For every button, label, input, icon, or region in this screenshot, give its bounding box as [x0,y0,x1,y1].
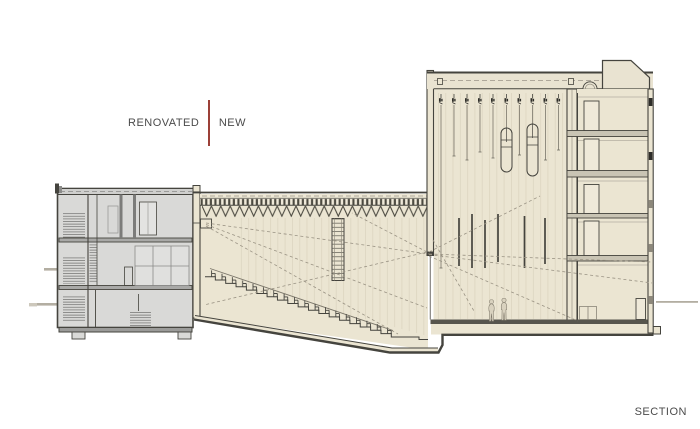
foundation-pad [72,332,85,339]
section-title: SECTION [635,406,687,418]
section-drawing-canvas: RENOVATED NEW SECTION [0,0,700,429]
hanging-tech-box [332,219,344,281]
proscenium-wall [427,71,434,256]
floor-slab [59,286,192,290]
auditorium-left-wall [193,192,200,318]
roof-vent [438,79,443,85]
door [584,221,599,256]
parapet-stub [55,184,59,194]
door [636,299,646,320]
ground-line-left-lower [36,303,58,306]
renovated-label: RENOVATED [128,117,199,129]
renovated-new-legend: RENOVATED NEW [128,100,246,146]
ground-step-left [29,303,37,306]
acoustic-sawtooth-ceiling [202,205,428,217]
section-drawing [0,0,700,429]
foundation-pad [178,332,191,339]
auditorium-roof [193,193,430,218]
renovated-building [55,184,193,340]
auditorium [193,186,438,353]
stage-wall-panelling [436,93,566,319]
door [584,101,599,131]
stage-floor [431,320,654,325]
base-slab [59,328,192,333]
fly-tower-roof [427,61,653,90]
legend-divider-line [208,100,210,146]
door [584,139,599,171]
ground-line-left-upper [44,268,58,271]
ground-line-right [656,301,698,303]
new-label: NEW [219,117,246,129]
sloped-parapet [603,61,650,90]
roof-vent [569,79,574,85]
door [584,185,599,214]
side-rooms [567,89,653,333]
